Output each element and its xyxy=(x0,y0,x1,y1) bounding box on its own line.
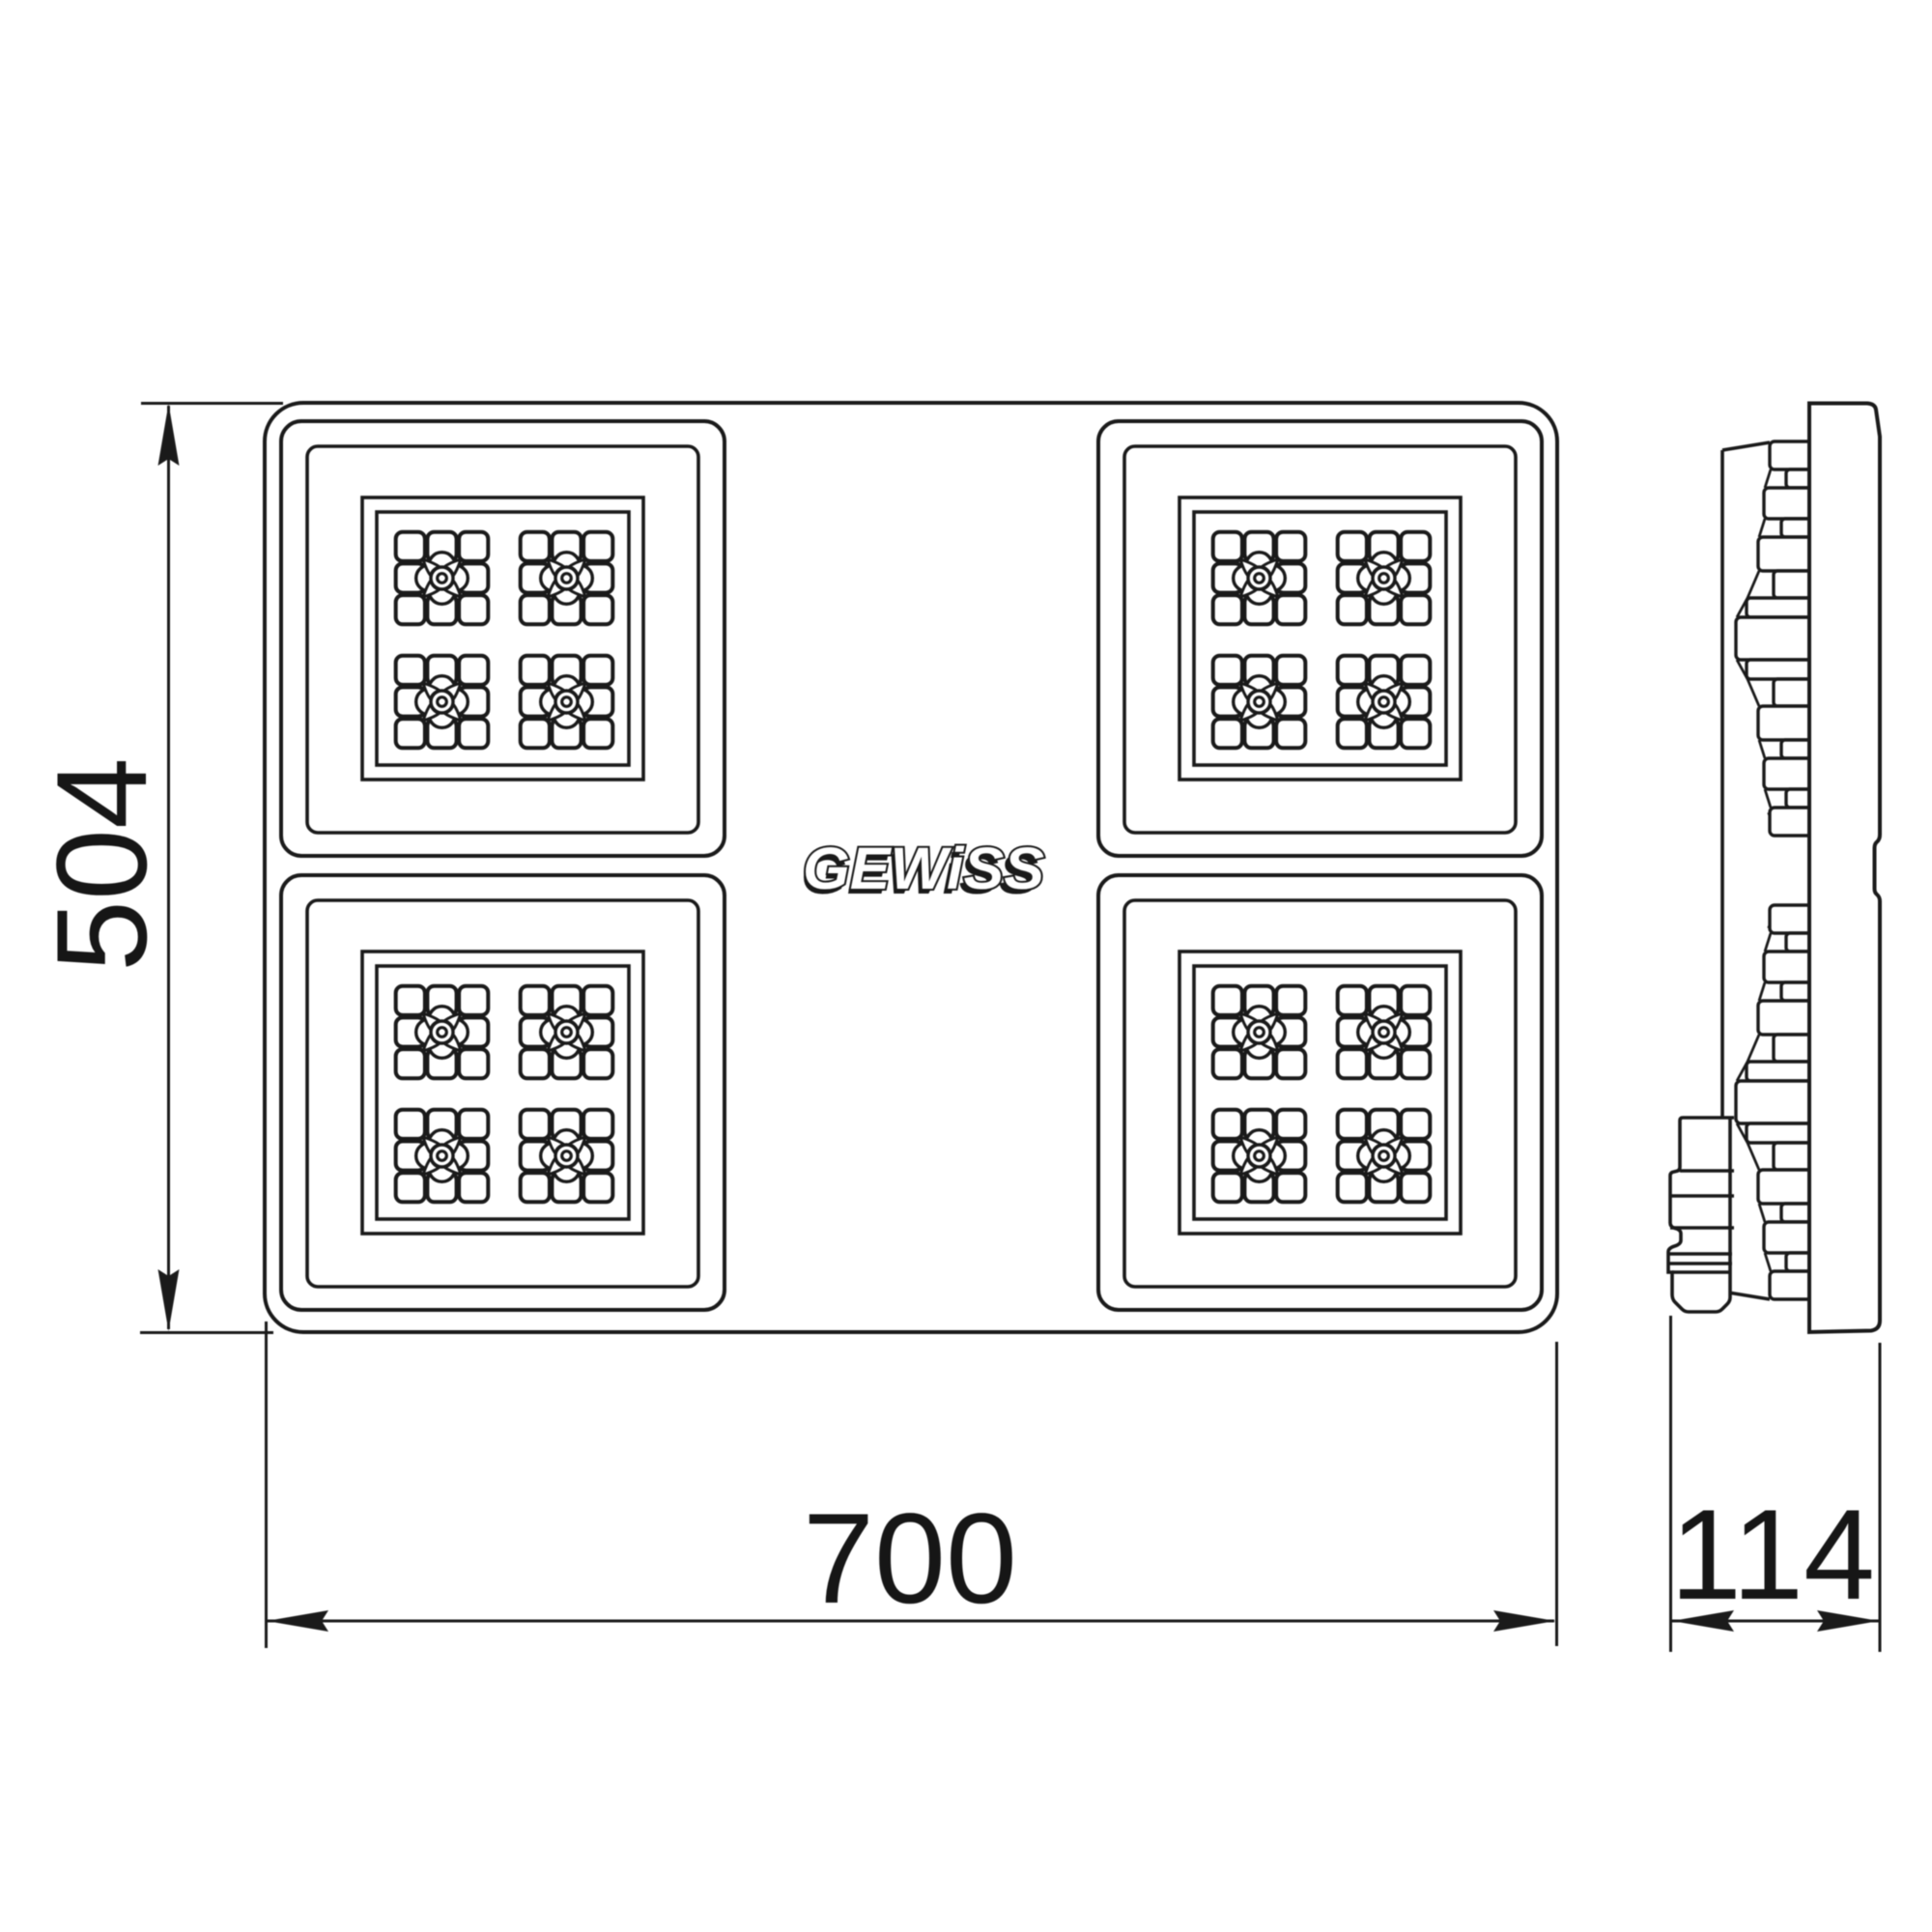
svg-text:504: 504 xyxy=(31,757,174,972)
svg-text:GEWiSS: GEWiSS xyxy=(803,836,1044,901)
svg-text:700: 700 xyxy=(803,1488,1017,1631)
svg-text:114: 114 xyxy=(1670,1484,1875,1627)
